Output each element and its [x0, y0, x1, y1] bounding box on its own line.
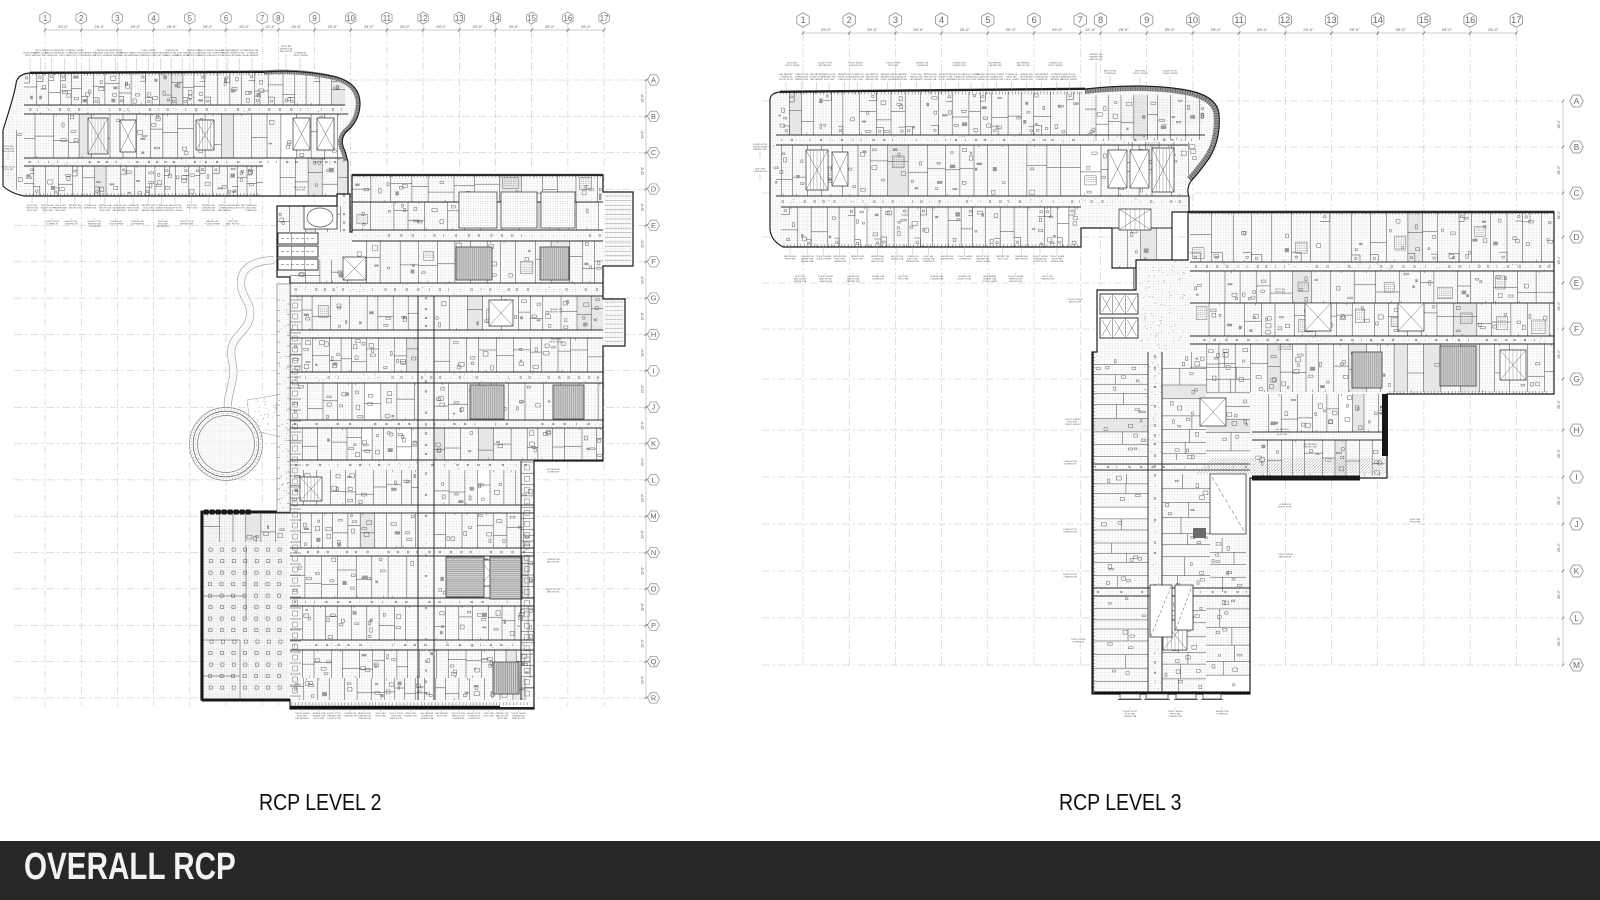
svg-text:PATIENT RM: PATIENT RM: [550, 311, 563, 314]
svg-text:NURSE STA: NURSE STA: [924, 78, 937, 81]
svg-text:P: P: [651, 621, 656, 630]
svg-text:NURSE STA: NURSE STA: [1279, 343, 1292, 346]
svg-text:PATIENT RM: PATIENT RM: [142, 204, 155, 207]
svg-text:MED ROOM: MED ROOM: [1009, 281, 1021, 283]
svg-text:LAV PATIENT: LAV PATIENT: [818, 64, 832, 67]
svg-text:7: 7: [260, 14, 264, 23]
svg-text:PATIENT RM: PATIENT RM: [833, 255, 846, 258]
svg-text:RCP LEVEL 3: RCP LEVEL 3: [1059, 788, 1181, 815]
svg-text:PROV RM: PROV RM: [187, 208, 197, 210]
svg-text:NURSE STA: NURSE STA: [99, 204, 112, 207]
svg-text:MED ROOM: MED ROOM: [226, 224, 238, 226]
svg-text:NURSE STA: NURSE STA: [1216, 710, 1229, 713]
svg-text:NURSE STA: NURSE STA: [984, 278, 997, 281]
svg-text:PROV RM: PROV RM: [313, 162, 323, 164]
svg-text:MED ROOM: MED ROOM: [69, 208, 81, 210]
svg-text:29'-0": 29'-0": [545, 25, 555, 29]
svg-text:29'-0": 29'-0": [1557, 165, 1561, 174]
svg-text:LAV PATIENT: LAV PATIENT: [245, 54, 259, 57]
svg-text:PATIENT RM: PATIENT RM: [754, 148, 767, 151]
svg-text:10: 10: [1188, 15, 1198, 25]
svg-text:PROV RM: PROV RM: [966, 79, 976, 81]
svg-text:LAV PATIENT: LAV PATIENT: [910, 78, 924, 81]
svg-text:29'-0": 29'-0": [641, 530, 645, 538]
svg-text:NURSE STA: NURSE STA: [550, 308, 563, 311]
svg-text:1 BEDROOM: 1 BEDROOM: [1041, 279, 1054, 281]
svg-text:NURSE STA: NURSE STA: [958, 275, 971, 278]
svg-text:TOILET SHWR: TOILET SHWR: [982, 281, 997, 283]
svg-text:I: I: [1575, 473, 1577, 482]
svg-text:TOILET SHWR: TOILET SHWR: [1048, 65, 1063, 67]
svg-text:PATIENT RM: PATIENT RM: [996, 255, 1009, 258]
svg-text:CORRIDOR: CORRIDOR: [1216, 714, 1228, 716]
svg-text:LAV PATIENT: LAV PATIENT: [218, 209, 232, 212]
svg-text:NURSE STA: NURSE STA: [70, 51, 83, 54]
svg-text:29'-0": 29'-0": [1052, 27, 1063, 32]
svg-text:MED ROOM: MED ROOM: [280, 51, 292, 53]
svg-text:ELEC RM: ELEC RM: [437, 716, 447, 718]
svg-text:29'-0": 29'-0": [1303, 27, 1314, 32]
svg-text:NURSE STA: NURSE STA: [512, 715, 525, 718]
svg-text:NURSE STA: NURSE STA: [1124, 715, 1137, 718]
svg-text:PATIENT RM: PATIENT RM: [358, 712, 371, 715]
svg-text:29'-0": 29'-0": [1488, 27, 1499, 32]
svg-text:29'-0": 29'-0": [1557, 255, 1561, 264]
svg-text:PROV RM: PROV RM: [852, 259, 862, 261]
svg-text:29'-0": 29'-0": [641, 130, 645, 138]
svg-text:8: 8: [276, 14, 280, 23]
svg-text:MED ROOM: MED ROOM: [1069, 302, 1081, 304]
svg-text:PROV RM: PROV RM: [497, 718, 507, 720]
svg-text:29'-0": 29'-0": [1557, 119, 1561, 128]
svg-text:29'-0": 29'-0": [1557, 636, 1561, 645]
svg-text:NURSE STA: NURSE STA: [280, 47, 293, 50]
svg-text:6: 6: [224, 14, 228, 23]
svg-text:1 BEDROOM: 1 BEDROOM: [838, 79, 851, 81]
svg-text:29'-0": 29'-0": [328, 25, 338, 29]
svg-text:3: 3: [115, 14, 119, 23]
svg-text:1 BEDROOM: 1 BEDROOM: [1063, 532, 1076, 534]
svg-text:29'-0": 29'-0": [1442, 27, 1453, 32]
svg-text:TOILET SHWR: TOILET SHWR: [1004, 79, 1019, 81]
svg-text:NURSE STA: NURSE STA: [155, 209, 168, 212]
svg-text:PROV RM: PROV RM: [25, 55, 35, 57]
svg-text:LAV PATIENT: LAV PATIENT: [988, 61, 1002, 64]
svg-text:1 BEDROOM: 1 BEDROOM: [1168, 716, 1181, 718]
svg-text:CORRIDOR: CORRIDOR: [547, 472, 559, 474]
svg-text:3: 3: [893, 15, 898, 25]
svg-text:NURSE STA: NURSE STA: [84, 207, 97, 210]
svg-text:29'-0": 29'-0": [58, 25, 68, 29]
svg-text:TOILET SHWR: TOILET SHWR: [1163, 73, 1178, 75]
svg-text:NURSE STA: NURSE STA: [198, 51, 211, 54]
svg-text:PATIENT RM: PATIENT RM: [881, 75, 894, 78]
svg-text:1 BEDROOM: 1 BEDROOM: [976, 79, 989, 81]
svg-text:ELEC RM: ELEC RM: [27, 210, 37, 212]
svg-text:29'-0": 29'-0": [473, 25, 483, 29]
svg-text:F: F: [1574, 325, 1579, 334]
svg-text:PATIENT RM: PATIENT RM: [68, 204, 81, 207]
svg-text:ELEC RM: ELEC RM: [128, 210, 138, 212]
svg-text:PATIENT RM: PATIENT RM: [990, 78, 1003, 81]
svg-text:12: 12: [419, 14, 428, 23]
svg-text:PATIENT RM: PATIENT RM: [1009, 278, 1022, 281]
svg-text:TOILET SHWR: TOILET SHWR: [816, 259, 831, 261]
svg-text:PROV RM: PROV RM: [785, 259, 795, 261]
svg-text:N: N: [651, 548, 656, 557]
svg-text:PATIENT RM: PATIENT RM: [1090, 53, 1103, 56]
svg-text:CORRIDOR: CORRIDOR: [45, 55, 57, 57]
svg-text:ELEC RM: ELEC RM: [998, 259, 1008, 261]
svg-text:29'-0": 29'-0": [641, 421, 645, 429]
svg-text:CORRIDOR: CORRIDOR: [88, 226, 100, 228]
svg-text:NURSE STA: NURSE STA: [1020, 73, 1033, 76]
svg-text:CORRIDOR: CORRIDOR: [922, 261, 934, 263]
svg-text:G: G: [651, 294, 657, 303]
svg-text:1 BEDROOM: 1 BEDROOM: [344, 716, 357, 718]
svg-text:LAV PATIENT: LAV PATIENT: [1035, 73, 1049, 76]
svg-text:1 BEDROOM: 1 BEDROOM: [930, 279, 943, 281]
svg-text:TOILET SHWR: TOILET SHWR: [205, 224, 220, 226]
svg-text:1 BEDROOM: 1 BEDROOM: [833, 261, 846, 263]
svg-text:PROV RM: PROV RM: [888, 65, 898, 67]
svg-text:5: 5: [985, 15, 990, 25]
svg-text:CORRIDOR: CORRIDOR: [916, 65, 928, 67]
svg-text:29'-0": 29'-0": [1557, 589, 1561, 598]
svg-text:ELEC RM: ELEC RM: [100, 210, 110, 212]
svg-text:PATIENT RM: PATIENT RM: [881, 73, 894, 76]
svg-text:16: 16: [564, 14, 573, 23]
svg-text:CORRIDOR: CORRIDOR: [1064, 464, 1076, 466]
svg-text:TOILET SHWR: TOILET SHWR: [938, 79, 953, 81]
svg-text:29'-0": 29'-0": [641, 603, 645, 611]
svg-text:L: L: [1574, 614, 1579, 623]
svg-text:29'-0": 29'-0": [1396, 27, 1407, 32]
svg-text:NURSE STA: NURSE STA: [313, 715, 326, 718]
svg-text:RCP LEVEL 2: RCP LEVEL 2: [259, 788, 381, 815]
svg-text:NURSE STA: NURSE STA: [421, 717, 434, 720]
svg-text:16: 16: [1465, 15, 1475, 25]
svg-text:1 BEDROOM: 1 BEDROOM: [65, 224, 78, 226]
svg-text:1 BEDROOM: 1 BEDROOM: [753, 171, 766, 173]
svg-text:PATIENT RM: PATIENT RM: [865, 78, 878, 81]
svg-text:PATIENT RM: PATIENT RM: [328, 715, 341, 718]
svg-text:NURSE STA: NURSE STA: [922, 258, 935, 261]
svg-text:TOILET SHWR: TOILET SHWR: [880, 79, 895, 81]
svg-text:LAV PATIENT: LAV PATIENT: [810, 73, 824, 76]
svg-text:29'-0": 29'-0": [1557, 399, 1561, 408]
svg-text:1 BEDROOM: 1 BEDROOM: [988, 65, 1001, 67]
svg-text:7: 7: [1078, 15, 1083, 25]
svg-text:K: K: [651, 439, 656, 448]
svg-text:LAV PATIENT: LAV PATIENT: [1275, 428, 1289, 431]
svg-text:10: 10: [346, 14, 355, 23]
svg-text:F: F: [651, 257, 656, 266]
svg-text:A: A: [1574, 97, 1580, 106]
svg-text:NURSE STA: NURSE STA: [891, 258, 904, 261]
svg-text:29'-0": 29'-0": [364, 25, 374, 29]
svg-text:NURSE STA: NURSE STA: [404, 715, 417, 718]
svg-text:LAV PATIENT: LAV PATIENT: [1278, 348, 1292, 351]
svg-text:NURSE STA: NURSE STA: [1015, 255, 1028, 258]
svg-text:J: J: [652, 403, 656, 412]
svg-text:2: 2: [847, 15, 852, 25]
svg-text:M: M: [1573, 661, 1580, 670]
svg-text:29'-0": 29'-0": [1118, 27, 1129, 32]
svg-text:D: D: [651, 185, 656, 194]
svg-text:29'-0": 29'-0": [641, 458, 645, 466]
svg-text:E: E: [651, 221, 656, 230]
svg-text:PATIENT RM: PATIENT RM: [142, 209, 155, 212]
svg-text:MED ROOM: MED ROOM: [1017, 65, 1029, 67]
svg-text:PATIENT RM: PATIENT RM: [83, 51, 96, 54]
svg-text:OVERALL RCP: OVERALL RCP: [24, 846, 236, 888]
svg-text:MED ROOM: MED ROOM: [512, 718, 524, 720]
svg-text:R: R: [651, 694, 656, 703]
svg-text:29'-0": 29'-0": [867, 27, 878, 32]
svg-text:29'-0": 29'-0": [239, 25, 249, 29]
svg-text:4: 4: [939, 15, 944, 25]
svg-text:29'-0": 29'-0": [641, 312, 645, 320]
svg-text:29'-0": 29'-0": [509, 25, 519, 29]
svg-text:29'-0": 29'-0": [581, 25, 591, 29]
svg-text:LAV PATIENT: LAV PATIENT: [131, 223, 145, 226]
svg-text:29'-0": 29'-0": [1557, 210, 1561, 219]
svg-text:29'-0": 29'-0": [641, 676, 645, 684]
svg-text:PATIENT RM: PATIENT RM: [221, 51, 234, 54]
svg-text:PROV RM: PROV RM: [898, 279, 908, 281]
svg-text:13: 13: [1326, 15, 1336, 25]
svg-text:NURSE STA: NURSE STA: [313, 712, 326, 715]
svg-text:B: B: [1574, 143, 1580, 152]
svg-text:G: G: [1573, 375, 1579, 384]
svg-text:NURSE STA: NURSE STA: [795, 75, 808, 78]
svg-text:LAV PATIENT: LAV PATIENT: [113, 207, 127, 210]
svg-text:EQUIP STOR: EQUIP STOR: [1033, 261, 1047, 263]
svg-text:NURSE STA: NURSE STA: [1020, 78, 1033, 81]
svg-text:EQUIP STOR: EQUIP STOR: [1278, 507, 1292, 509]
svg-text:1 BEDROOM: 1 BEDROOM: [198, 55, 211, 57]
svg-text:NURSE STA: NURSE STA: [26, 207, 39, 210]
svg-text:29'-0": 29'-0": [641, 385, 645, 393]
svg-text:H: H: [1574, 426, 1580, 435]
svg-text:LAV PATIENT: LAV PATIENT: [546, 468, 560, 471]
svg-text:CORRIDOR: CORRIDOR: [1035, 79, 1047, 81]
svg-text:ELEC RM: ELEC RM: [376, 716, 386, 718]
svg-text:ELEC RM: ELEC RM: [824, 79, 834, 81]
svg-text:EQUIP STOR: EQUIP STOR: [779, 79, 793, 81]
svg-text:LAV PATIENT: LAV PATIENT: [983, 275, 997, 278]
svg-text:11: 11: [1234, 15, 1244, 25]
svg-text:1 BEDROOM: 1 BEDROOM: [952, 65, 965, 67]
svg-text:CORRIDOR: CORRIDOR: [245, 210, 257, 212]
svg-text:CORRIDOR: CORRIDOR: [46, 224, 58, 226]
svg-text:NURSE STA: NURSE STA: [990, 75, 1003, 78]
svg-text:29'-0": 29'-0": [203, 25, 213, 29]
svg-text:PATIENT RM: PATIENT RM: [924, 73, 937, 76]
svg-text:14: 14: [491, 14, 500, 23]
svg-text:PATIENT RM: PATIENT RM: [847, 280, 860, 283]
svg-text:29'-0": 29'-0": [641, 494, 645, 502]
svg-text:14: 14: [1373, 15, 1383, 25]
svg-text:ELEC RM: ELEC RM: [314, 718, 324, 720]
svg-text:MED ROOM: MED ROOM: [390, 718, 402, 720]
svg-text:29'-0": 29'-0": [1257, 27, 1268, 32]
svg-text:CORRIDOR: CORRIDOR: [452, 718, 464, 720]
svg-text:TOILET SHWR: TOILET SHWR: [1062, 79, 1077, 81]
svg-text:PATIENT RM: PATIENT RM: [871, 255, 884, 258]
svg-text:I: I: [652, 366, 654, 375]
svg-text:29'-0": 29'-0": [400, 25, 410, 29]
svg-text:29'-0": 29'-0": [641, 240, 645, 248]
svg-text:PATIENT RM: PATIENT RM: [976, 258, 989, 261]
svg-text:LAV PATIENT: LAV PATIENT: [156, 225, 170, 228]
svg-text:MED ROOM: MED ROOM: [1279, 557, 1291, 559]
svg-text:M: M: [650, 512, 656, 521]
svg-text:TOILET SHWR: TOILET SHWR: [549, 342, 564, 344]
svg-text:PATIENT RM: PATIENT RM: [823, 75, 836, 78]
svg-text:1 BEDROOM: 1 BEDROOM: [1063, 577, 1076, 579]
svg-text:29'-0": 29'-0": [1006, 27, 1017, 32]
svg-text:PATIENT RM: PATIENT RM: [906, 260, 919, 263]
svg-text:NURSE STA: NURSE STA: [219, 204, 232, 207]
svg-text:LAV PATIENT: LAV PATIENT: [435, 712, 449, 715]
svg-text:LAV PATIENT: LAV PATIENT: [894, 73, 908, 76]
svg-text:LAV PATIENT: LAV PATIENT: [1016, 61, 1030, 64]
svg-text:CORRIDOR: CORRIDOR: [959, 259, 971, 261]
svg-text:ELEC RM: ELEC RM: [484, 716, 494, 718]
svg-text:9: 9: [312, 14, 316, 23]
svg-text:12: 12: [1280, 15, 1290, 25]
svg-text:29'-0": 29'-0": [1557, 448, 1561, 457]
svg-text:EQUIP STOR: EQUIP STOR: [958, 279, 972, 281]
svg-text:29'-0": 29'-0": [641, 276, 645, 284]
svg-text:1: 1: [43, 14, 47, 23]
svg-text:PATIENT RM: PATIENT RM: [851, 255, 864, 258]
svg-text:29'-0": 29'-0": [1349, 27, 1360, 32]
svg-text:PATIENT RM: PATIENT RM: [1090, 55, 1103, 58]
svg-text:NURSE STA: NURSE STA: [794, 280, 807, 283]
svg-text:D: D: [1574, 233, 1580, 242]
svg-text:LAV PATIENT: LAV PATIENT: [810, 78, 824, 81]
svg-text:PROV RM: PROV RM: [1275, 292, 1285, 294]
svg-text:17: 17: [1511, 15, 1521, 25]
svg-text:PATIENT RM: PATIENT RM: [496, 712, 509, 715]
svg-text:MED ROOM: MED ROOM: [2, 151, 14, 153]
svg-text:LAV PATIENT: LAV PATIENT: [1020, 75, 1034, 78]
svg-text:NURSE STA: NURSE STA: [96, 51, 109, 54]
svg-text:TOILET SHWR: TOILET SHWR: [975, 261, 990, 263]
svg-text:A: A: [651, 76, 656, 85]
svg-text:LAV PATIENT: LAV PATIENT: [295, 717, 309, 720]
svg-text:B: B: [651, 112, 656, 121]
svg-text:1 BEDROOM: 1 BEDROOM: [849, 65, 862, 67]
svg-text:MED ROOM: MED ROOM: [1015, 259, 1027, 261]
svg-text:NURSE STA: NURSE STA: [872, 275, 885, 278]
svg-text:PATIENT RM: PATIENT RM: [838, 73, 851, 76]
svg-text:15: 15: [1419, 15, 1429, 25]
svg-text:29'-0": 29'-0": [641, 349, 645, 357]
svg-text:TOILET SHWR: TOILET SHWR: [94, 55, 109, 57]
svg-text:NURSE STA: NURSE STA: [246, 49, 259, 52]
svg-text:NURSE STA: NURSE STA: [202, 204, 215, 207]
svg-text:ELEC RM: ELEC RM: [35, 55, 45, 57]
svg-text:13: 13: [455, 14, 464, 23]
svg-text:TOILET SHWR: TOILET SHWR: [108, 224, 123, 226]
svg-text:29'-0": 29'-0": [641, 567, 645, 575]
svg-text:MED ROOM: MED ROOM: [547, 592, 559, 594]
svg-text:TOILET SHWR: TOILET SHWR: [1133, 73, 1148, 75]
svg-text:TOILET SHWR: TOILET SHWR: [293, 55, 308, 57]
svg-text:PROV RM: PROV RM: [59, 55, 69, 57]
svg-text:PROV RM: PROV RM: [852, 79, 862, 81]
svg-text:LAV PATIENT: LAV PATIENT: [113, 209, 127, 212]
svg-text:C: C: [651, 148, 657, 157]
svg-text:1 BEDROOM: 1 BEDROOM: [819, 281, 832, 283]
svg-text:EQUIP STOR: EQUIP STOR: [70, 55, 84, 57]
svg-text:PATIENT RM: PATIENT RM: [88, 223, 101, 226]
svg-text:1: 1: [800, 15, 805, 25]
svg-text:1 BEDROOM: 1 BEDROOM: [940, 259, 953, 261]
svg-text:17: 17: [600, 14, 609, 23]
svg-text:CORRIDOR: CORRIDOR: [468, 718, 480, 720]
svg-text:NURSE STA: NURSE STA: [202, 209, 215, 212]
svg-text:PATIENT RM: PATIENT RM: [795, 78, 808, 81]
svg-text:CORRIDOR: CORRIDOR: [872, 279, 884, 281]
svg-text:PROV RM: PROV RM: [55, 210, 65, 212]
svg-text:PATIENT RM: PATIENT RM: [976, 73, 989, 76]
svg-text:O: O: [651, 584, 657, 593]
svg-text:PATIENT RM: PATIENT RM: [1304, 446, 1317, 449]
svg-text:4: 4: [151, 14, 156, 23]
svg-text:MED ROOM: MED ROOM: [547, 562, 559, 564]
svg-text:L: L: [651, 475, 655, 484]
svg-text:29'-0": 29'-0": [1557, 301, 1561, 310]
svg-text:PATIENT RM: PATIENT RM: [1063, 75, 1076, 78]
svg-text:PATIENT RM: PATIENT RM: [939, 73, 952, 76]
svg-text:PATIENT RM: PATIENT RM: [231, 204, 244, 207]
svg-text:NURSE STA: NURSE STA: [155, 207, 168, 210]
svg-text:29'-0": 29'-0": [641, 639, 645, 647]
svg-text:29'-0": 29'-0": [436, 25, 446, 29]
svg-text:TOILET SHWR: TOILET SHWR: [1065, 424, 1080, 426]
svg-text:29'-0": 29'-0": [1557, 495, 1561, 504]
svg-text:TOILET SHWR: TOILET SHWR: [168, 210, 183, 212]
svg-text:PATIENT RM: PATIENT RM: [54, 207, 67, 210]
svg-text:NURSE STA: NURSE STA: [801, 260, 814, 263]
svg-text:H: H: [651, 330, 656, 339]
svg-text:NURSE STA: NURSE STA: [1051, 260, 1064, 263]
svg-text:Q: Q: [651, 657, 657, 666]
svg-text:PATIENT RM: PATIENT RM: [109, 49, 122, 52]
svg-text:EQUIP STOR: EQUIP STOR: [231, 208, 245, 210]
svg-text:NURSE STA: NURSE STA: [916, 61, 929, 64]
svg-text:9: 9: [1144, 15, 1149, 25]
svg-text:29'-0": 29'-0": [131, 25, 141, 29]
svg-text:29'-0": 29'-0": [641, 94, 645, 102]
svg-text:E: E: [1574, 279, 1580, 288]
svg-text:PATIENT RM: PATIENT RM: [894, 78, 907, 81]
svg-text:29'-0": 29'-0": [292, 25, 302, 29]
svg-text:5: 5: [188, 14, 193, 23]
svg-text:LAV PATIENT: LAV PATIENT: [420, 712, 434, 715]
svg-text:CORRIDOR: CORRIDOR: [233, 55, 245, 57]
svg-text:NURSE STA: NURSE STA: [801, 258, 814, 261]
svg-text:J: J: [1574, 520, 1578, 529]
svg-text:29'-0": 29'-0": [821, 27, 832, 32]
svg-text:29'-0": 29'-0": [1557, 542, 1561, 551]
svg-text:8: 8: [1098, 15, 1103, 25]
